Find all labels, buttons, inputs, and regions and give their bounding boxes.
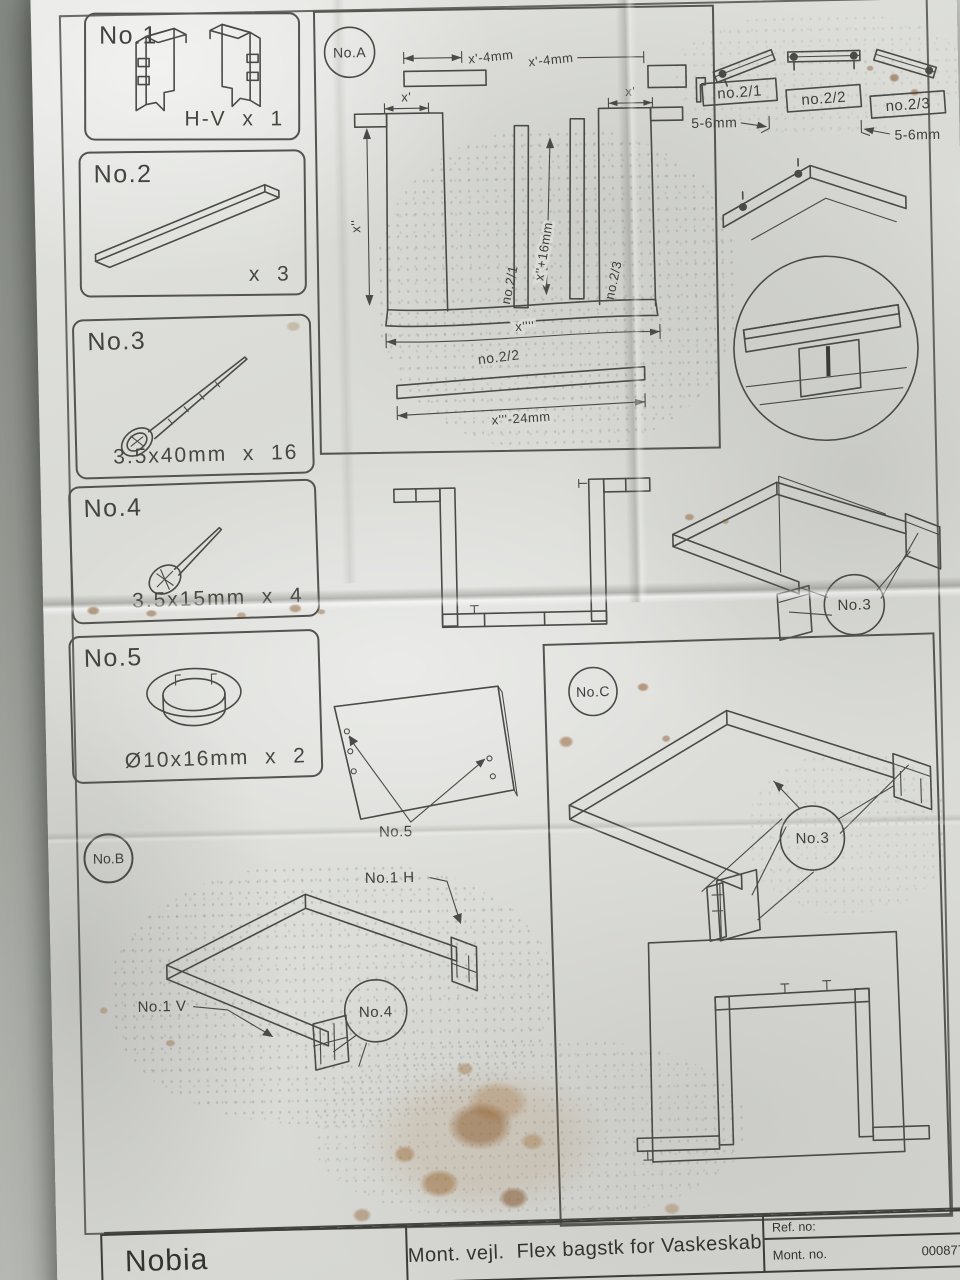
callout-no-a: No.A bbox=[324, 27, 375, 78]
bottom-rail-no22: no.2/2 x'''-24mm bbox=[396, 344, 645, 429]
callout-no3-c: No.3 bbox=[698, 765, 912, 921]
shelf-panel-drawing: No.5 bbox=[316, 668, 530, 842]
rail-piece-2 bbox=[788, 50, 860, 70]
rail-label-boxes: no.2/1 no.2/2 no.2/3 bbox=[702, 75, 946, 122]
center-strips: no.2/1 no.2/3 x''+16mm bbox=[495, 118, 625, 308]
dim-label: x' bbox=[625, 84, 635, 99]
mont-no-label: Mont. no. bbox=[773, 1246, 828, 1263]
dim-label: 5-6mm bbox=[691, 114, 737, 131]
callout-label: No.4 bbox=[359, 1003, 393, 1021]
back-panel-left: x' x'' bbox=[346, 89, 447, 313]
top-right-filler-bar: x'-4mm bbox=[528, 48, 687, 89]
ref-no-label: Ref. no: bbox=[772, 1219, 816, 1234]
flat-frame-drawing bbox=[382, 470, 660, 646]
label-no1-v: No.1 V bbox=[137, 996, 273, 1040]
callout-label: No.1 H bbox=[365, 869, 415, 887]
brand-text: Nobia bbox=[124, 1243, 208, 1279]
callout-label: No.B bbox=[93, 850, 124, 867]
title-cell: Mont. vejl. Flex bagstk for Vaskeskab bbox=[407, 1215, 763, 1280]
part-box-no3: No.3 3.5x40mm x 16 bbox=[72, 313, 315, 479]
iso-frame-c bbox=[567, 705, 936, 946]
mid-assembly-drawing: No.3 bbox=[646, 451, 950, 642]
rail-label: no.2/2 bbox=[477, 346, 521, 367]
iso-frame bbox=[672, 473, 942, 643]
dim-label: x'''-24mm bbox=[491, 409, 551, 428]
callout-no4: No.4 bbox=[332, 979, 408, 1067]
rail-piece-3 bbox=[874, 49, 937, 77]
shelf-panel bbox=[334, 686, 518, 820]
strip-label: no.2/1 bbox=[498, 264, 521, 305]
dim-label: x'' bbox=[348, 220, 363, 233]
section-c-drawing: No.C No.3 bbox=[545, 634, 950, 1224]
part-box-no4: No.4 3.5x15mm x 4 bbox=[68, 478, 320, 624]
detail-circle bbox=[732, 254, 920, 442]
callout-label: No.C bbox=[576, 683, 610, 700]
mont-no-value: 000877 bbox=[921, 1242, 960, 1258]
clip-piece bbox=[696, 78, 706, 102]
part-qty: H-V x 1 bbox=[184, 107, 284, 131]
iso-frame-b bbox=[165, 891, 479, 1073]
dim-label: x'-4mm bbox=[528, 50, 575, 70]
rail-label: no.2/1 bbox=[717, 82, 763, 102]
dim-label: x''+16mm bbox=[531, 221, 555, 282]
dim-label: x'''' bbox=[515, 318, 535, 334]
callout-no-c: No.C bbox=[568, 667, 617, 716]
mont-no-row: Mont. no. 000877 bbox=[764, 1234, 960, 1271]
part-box-no1: No.1 H-V x 1 bbox=[84, 12, 300, 140]
callout-label: No.5 bbox=[379, 823, 413, 841]
document-title: Mont. vejl. Flex bagstk for Vaskeskab bbox=[408, 1231, 763, 1268]
panel-with-frame bbox=[631, 931, 929, 1163]
corner-detail-drawing bbox=[710, 141, 941, 441]
detail-contents bbox=[743, 305, 907, 405]
section-b-drawing: No.1 H No.1 V No.4 bbox=[125, 859, 489, 1078]
callout-label: No.3 bbox=[795, 830, 829, 848]
callout-label: No.1 V bbox=[137, 998, 186, 1016]
dim-label: x' bbox=[401, 89, 411, 104]
part-qty: 3.5x40mm x 16 bbox=[113, 441, 299, 470]
section-a-box: No.A x'-4mm x'-4mm x' bbox=[313, 5, 721, 455]
rail-pieces-drawing: no.2/1 no.2/2 no.2/3 5-6mm 5-6mm bbox=[687, 27, 952, 156]
rail-label: no.2/3 bbox=[885, 95, 931, 115]
section-c-box: No.C No.3 bbox=[543, 632, 952, 1226]
label-no1-h: No.1 H bbox=[365, 868, 462, 926]
top-left-filler-bar: x'-4mm bbox=[404, 47, 515, 87]
part-box-no2: No.2 x 3 bbox=[78, 149, 307, 297]
dim-label: x'-4mm bbox=[468, 47, 515, 67]
paper-sheet: No.1 H-V x 1 No.2 x 3 No.3 bbox=[30, 0, 960, 1280]
bracket-left bbox=[136, 28, 186, 110]
photo-backdrop: No.1 H-V x 1 No.2 x 3 No.3 bbox=[0, 0, 960, 1280]
flat-frame bbox=[394, 478, 653, 628]
callout-no-a-label: No.A bbox=[333, 44, 367, 61]
bracket-right bbox=[210, 24, 260, 106]
brand-cell: Nobia bbox=[102, 1227, 409, 1280]
callout-label: No.3 bbox=[837, 596, 871, 614]
rail-label: no.2/2 bbox=[801, 89, 847, 109]
section-a-drawing: No.A x'-4mm x'-4mm x' bbox=[315, 7, 719, 453]
iso-corner-rails bbox=[722, 157, 907, 241]
strip-label: no.2/3 bbox=[602, 259, 625, 300]
ref-cell: Ref. no: Mont. no. 000877 bbox=[762, 1211, 960, 1271]
callout-no5: No.5 bbox=[349, 732, 487, 841]
part-box-no5: No.5 Ø10x16mm x 2 bbox=[68, 629, 323, 784]
callout-no3-mid: No.3 bbox=[788, 533, 920, 636]
part-qty: x 3 bbox=[249, 262, 291, 286]
total-width-dim: x'''' bbox=[386, 316, 660, 348]
